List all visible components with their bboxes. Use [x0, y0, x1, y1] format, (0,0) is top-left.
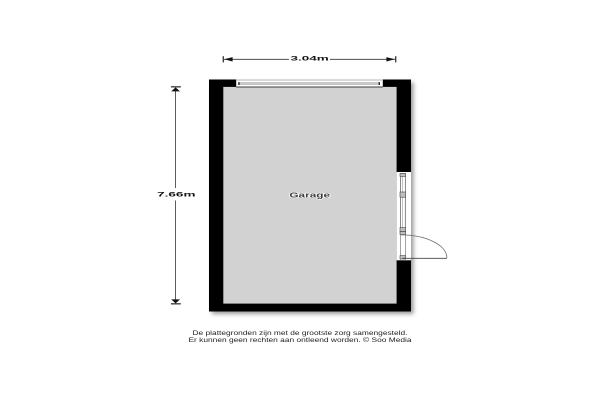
svg-text:Garage: Garage — [289, 192, 330, 200]
svg-text:3.04m: 3.04m — [290, 55, 328, 62]
svg-text:Er kunnen geen rechten aan ont: Er kunnen geen rechten aan ontleend word… — [188, 336, 412, 344]
svg-text:7.66m: 7.66m — [157, 191, 195, 198]
